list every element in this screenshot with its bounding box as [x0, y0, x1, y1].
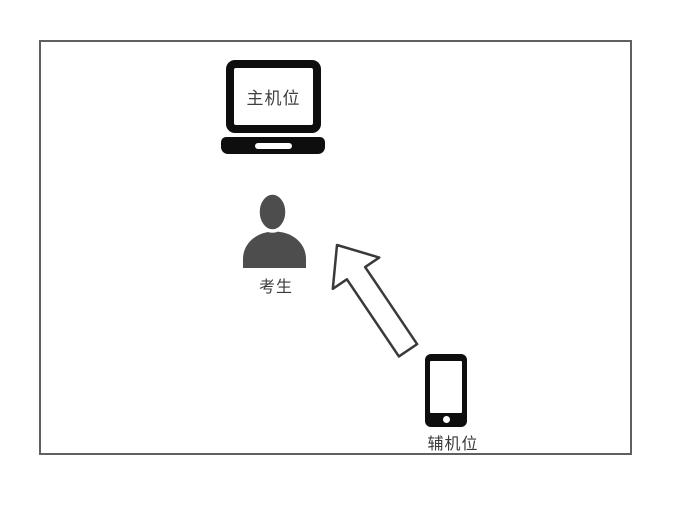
aux-camera-label: 辅机位 [405, 430, 501, 454]
phone-icon [425, 354, 467, 427]
examinee-label: 考生 [231, 273, 321, 297]
phone-screen [430, 361, 462, 413]
person-head [258, 193, 287, 231]
arrow-shape [314, 229, 431, 366]
person-body [243, 232, 306, 269]
phone-home-button [443, 416, 450, 423]
exam-setup-diagram: 主机位 考生 辅机位 [0, 0, 687, 510]
person-icon [243, 193, 306, 268]
arrow-up-left-icon [314, 229, 431, 366]
diagram-overlay [0, 0, 687, 510]
